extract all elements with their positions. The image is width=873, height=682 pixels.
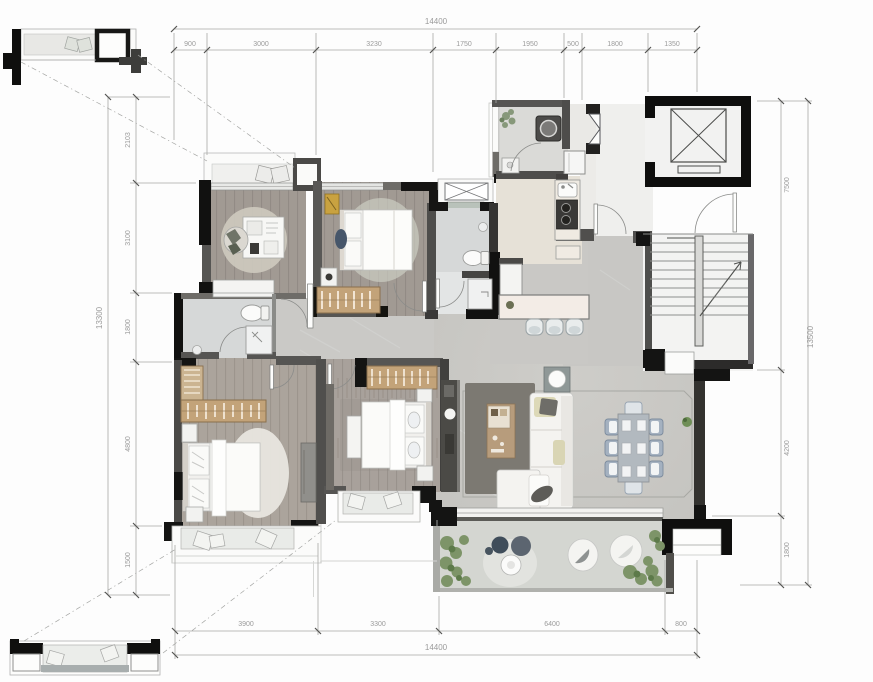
svg-text:7500: 7500 <box>784 177 791 193</box>
svg-text:1800: 1800 <box>125 319 132 335</box>
svg-text:1950: 1950 <box>522 41 538 48</box>
svg-text:3300: 3300 <box>370 621 386 628</box>
svg-text:14400: 14400 <box>425 17 448 26</box>
svg-text:13300: 13300 <box>95 306 104 329</box>
svg-text:4800: 4800 <box>125 436 132 452</box>
svg-text:2103: 2103 <box>125 132 132 148</box>
svg-text:13500: 13500 <box>806 325 815 348</box>
svg-text:1750: 1750 <box>456 41 472 48</box>
svg-text:1800: 1800 <box>607 41 623 48</box>
svg-text:3230: 3230 <box>366 41 382 48</box>
svg-text:900: 900 <box>184 41 196 48</box>
svg-text:1500: 1500 <box>125 552 132 568</box>
svg-text:3000: 3000 <box>253 41 269 48</box>
svg-text:1350: 1350 <box>664 41 680 48</box>
svg-text:6400: 6400 <box>544 621 560 628</box>
svg-text:3100: 3100 <box>125 230 132 246</box>
svg-text:500: 500 <box>567 41 579 48</box>
svg-text:3900: 3900 <box>238 621 254 628</box>
svg-text:4200: 4200 <box>784 440 791 456</box>
svg-text:1800: 1800 <box>784 542 791 558</box>
svg-text:800: 800 <box>675 621 687 628</box>
svg-text:14400: 14400 <box>425 643 448 652</box>
